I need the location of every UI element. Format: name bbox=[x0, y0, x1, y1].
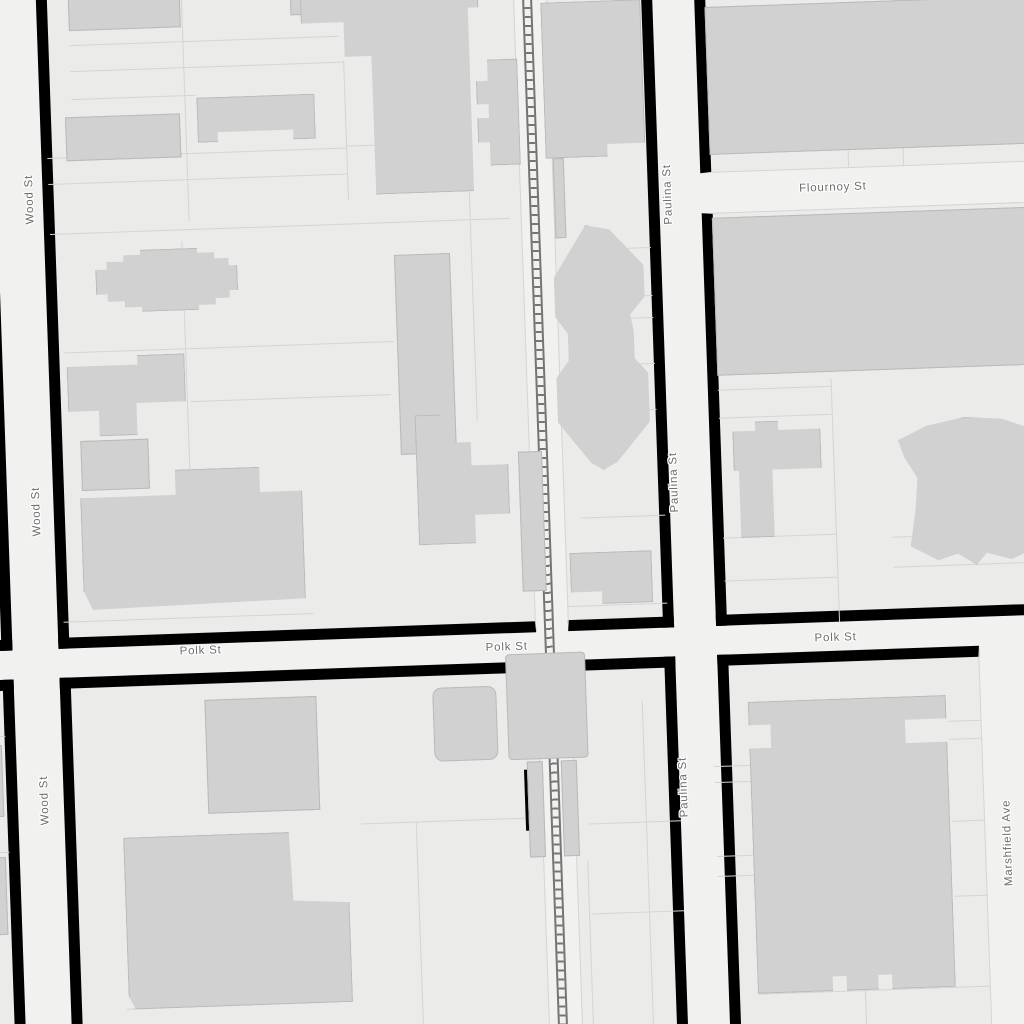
map-canvas[interactable]: Wood StWood StWood StPaulina StPaulina S… bbox=[0, 0, 1024, 1024]
street-labels-layer: Wood StWood StWood StPaulina StPaulina S… bbox=[0, 0, 1024, 1024]
street-label: Polk St bbox=[485, 641, 527, 654]
street-label: Paulina St bbox=[661, 164, 675, 225]
street-label: Marshfield Ave bbox=[1000, 800, 1015, 887]
street-label: Polk St bbox=[179, 644, 221, 657]
street-label: Polk St bbox=[814, 631, 856, 644]
street-label: Wood St bbox=[30, 487, 44, 537]
street-label: Flournoy St bbox=[799, 180, 867, 194]
street-label: Wood St bbox=[23, 175, 37, 225]
street-label: Paulina St bbox=[667, 452, 681, 513]
street-label: Paulina St bbox=[677, 757, 691, 818]
street-label: Wood St bbox=[38, 776, 52, 826]
map-viewport[interactable]: Wood StWood StWood StPaulina StPaulina S… bbox=[0, 0, 1024, 1024]
